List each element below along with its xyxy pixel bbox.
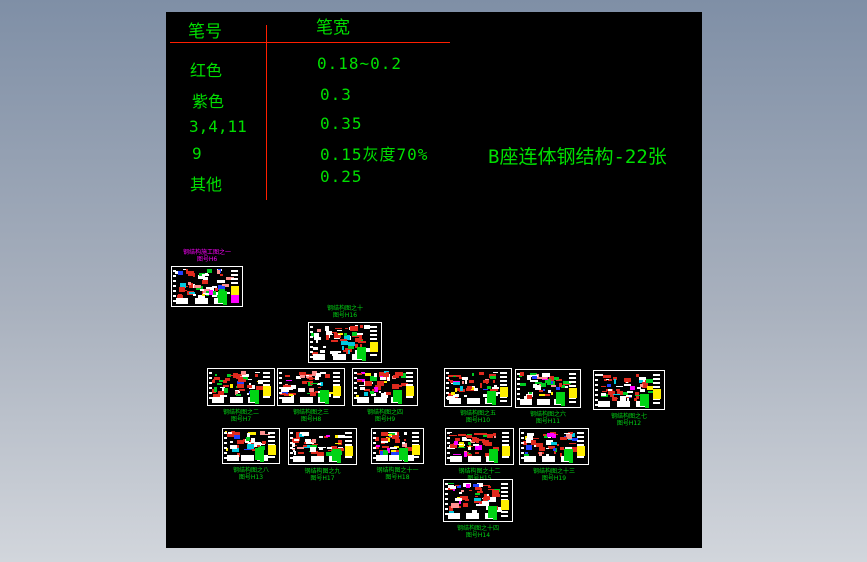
sheet-mark: [262, 441, 266, 444]
sheet-mark: [297, 447, 304, 449]
sheet-mark: [279, 377, 282, 379]
sheet-mark: [217, 270, 220, 274]
sheet-mark: [577, 456, 584, 458]
sheet-mark: [178, 294, 182, 297]
pen-table-header-number: 笔号: [188, 17, 222, 42]
sheet-mark: [458, 447, 466, 448]
sheet-mark: [614, 379, 616, 384]
pen-row-value: 0.15灰度70%: [320, 141, 428, 165]
sheet-mark: [373, 452, 376, 454]
sheet-mark: [485, 442, 492, 445]
drawing-sheet-thumbnail[interactable]: [308, 322, 382, 363]
sheet-mark: [354, 392, 357, 394]
sheet-mark: [447, 452, 450, 454]
sheet-mark: [500, 372, 507, 374]
sheet-mark: [390, 447, 397, 449]
sheet-mark: [320, 350, 325, 352]
sheet-mark: [231, 278, 238, 280]
sheet-mark: [346, 350, 348, 353]
sheet-mark: [209, 290, 213, 295]
sheet-mark: [189, 292, 195, 294]
sheet-mark: [460, 386, 463, 390]
cad-drawing-canvas[interactable]: 笔号 笔宽 红色 0.18~0.2 紫色 0.3 3,4,11 0.35 9 0…: [166, 12, 702, 548]
sheet-mark: [215, 374, 217, 376]
sheet-mark: [445, 493, 448, 495]
sheet-mark: [624, 378, 631, 381]
sheet-mark: [356, 338, 360, 340]
sheet-mark: [313, 347, 318, 350]
sheet-mark: [525, 452, 529, 455]
sheet-mark: [263, 380, 270, 382]
sheet-mark: [543, 434, 546, 436]
sheet-mark: [490, 376, 496, 378]
sheet-mark: [176, 298, 188, 304]
sheet-mark: [406, 396, 413, 398]
sheet-mark: [653, 374, 660, 376]
sheet-mark: [458, 434, 466, 436]
sheet-mark: [260, 459, 264, 462]
sheet-mark: [299, 372, 306, 376]
sheet-mark: [449, 398, 461, 404]
sheet-mark: [500, 380, 507, 382]
sheet-mark: [333, 372, 340, 374]
sheet-mark: [209, 392, 212, 394]
sheet-mark: [533, 438, 539, 439]
sheet-mark: [653, 389, 661, 399]
sheet-mark: [480, 383, 482, 388]
sheet-mark: [313, 354, 325, 360]
sheet-mark: [467, 386, 473, 389]
drawing-sheet-thumbnail[interactable]: [515, 369, 581, 408]
sheet-mark: [237, 440, 244, 444]
sheet-mark: [260, 431, 265, 435]
sheet-mark: [502, 446, 510, 456]
sheet-mark: [595, 384, 598, 386]
sheet-mark: [476, 504, 481, 506]
sheet-mark: [613, 394, 619, 395]
sheet-mark: [326, 435, 330, 437]
sheet-mark: [560, 437, 567, 440]
sheet-mark: [335, 435, 339, 438]
sheet-mark: [354, 387, 357, 389]
sheet-mark: [241, 371, 246, 375]
sheet-mark: [209, 382, 212, 384]
sheet-mark: [233, 373, 239, 378]
sheet-mark: [310, 392, 316, 397]
sheet-mark: [472, 373, 475, 376]
sheet-mark: [370, 338, 377, 340]
sheet-mark: [194, 285, 201, 288]
sheet-mark: [241, 455, 254, 461]
sheet-mark: [557, 444, 559, 446]
sheet-mark: [502, 436, 509, 438]
sheet-mark: [459, 492, 461, 493]
sheet-mark: [539, 447, 546, 451]
sheet-mark: [300, 432, 302, 434]
sheet-mark: [263, 376, 270, 378]
sheet-mark: [521, 447, 524, 449]
sheet-mark: [445, 488, 448, 490]
sheet-mark: [255, 401, 259, 404]
sheet-mark: [376, 455, 388, 461]
sheet-mark: [288, 387, 294, 390]
sheet-mark: [337, 460, 341, 463]
drawing-sheet-thumbnail[interactable]: [443, 479, 513, 522]
sheet-mark: [501, 511, 508, 513]
sheet-mark: [455, 498, 462, 501]
sheet-mark: [535, 382, 543, 383]
drawing-sheet-thumbnail[interactable]: [444, 368, 512, 407]
sheet-mark: [556, 387, 561, 390]
sheet-mark: [446, 372, 449, 374]
sheet-mark: [323, 346, 326, 348]
sheet-mark: [179, 287, 185, 292]
sheet-mark: [569, 381, 576, 383]
sheet-mark: [381, 432, 388, 435]
sheet-mark: [493, 517, 497, 520]
pen-table-header-width: 笔宽: [316, 13, 350, 38]
sheet-mark: [373, 442, 376, 444]
sheet-mark: [230, 375, 233, 376]
sheet-mark: [386, 392, 391, 395]
sheet-mark: [404, 459, 408, 462]
sheet-label: 钢结构图之四图号H9: [345, 409, 425, 423]
sheet-mark: [374, 397, 387, 403]
pen-row-label: 9: [192, 144, 202, 163]
sheet-mark: [290, 452, 293, 454]
sheet-mark: [178, 271, 182, 275]
sheet-mark: [200, 289, 204, 291]
sheet-mark: [230, 445, 236, 449]
sheet-mark: [532, 376, 537, 379]
sheet-mark: [345, 432, 352, 434]
sheet-mark: [224, 452, 227, 454]
sheet-mark: [569, 388, 577, 398]
sheet-mark: [545, 394, 549, 396]
sheet-mark: [364, 392, 368, 396]
drawing-sheet-thumbnail[interactable]: [519, 428, 589, 465]
sheet-label: 钢结构图之九图号H17: [283, 468, 363, 482]
sheet-mark: [294, 439, 296, 441]
sheet-mark: [217, 280, 225, 283]
sheet-mark: [393, 375, 399, 378]
sheet-mark: [494, 460, 498, 463]
sheet-mark: [537, 399, 550, 405]
sheet-mark: [268, 432, 275, 434]
drawing-sheet-thumbnail[interactable]: [207, 368, 275, 406]
sheet-mark: [653, 382, 660, 384]
sheet-mark: [217, 383, 222, 385]
sheet-mark: [569, 377, 576, 379]
sheet-mark: [325, 326, 329, 330]
sheet-mark: [310, 336, 313, 338]
sheet-mark: [392, 384, 399, 389]
drawing-sheet-thumbnail[interactable]: [171, 266, 243, 307]
sheet-mark: [454, 441, 458, 445]
sheet-mark: [447, 442, 450, 444]
sheet-mark: [333, 354, 346, 360]
sheet-mark: [473, 484, 478, 487]
sheet-mark: [451, 503, 459, 508]
sheet-mark: [354, 372, 357, 374]
sheet-mark: [653, 378, 660, 380]
sheet-mark: [381, 441, 388, 443]
sheet-mark: [302, 432, 310, 435]
cad-viewer-window: { "colors":{ "canvas_bg":"#000000", "bg_…: [0, 0, 867, 562]
sheet-mark: [337, 330, 342, 331]
sheet-mark: [595, 379, 598, 381]
sheet-mark: [214, 387, 218, 392]
sheet-mark: [173, 290, 176, 292]
sheet-mark: [542, 373, 549, 377]
sheet-mark: [445, 508, 448, 510]
sheet-mark: [406, 386, 414, 396]
sheet-mark: [310, 326, 313, 328]
sheet-mark: [606, 379, 609, 381]
sheet-mark: [345, 446, 353, 456]
sheet-mark: [345, 436, 352, 438]
sheet-mark: [466, 484, 470, 488]
sheet-mark: [450, 486, 455, 489]
sheet-mark: [310, 346, 313, 348]
sheet-mark: [325, 401, 329, 404]
sheet-mark: [350, 326, 358, 330]
sheet-mark: [452, 375, 460, 376]
sheet-mark: [520, 372, 524, 376]
sheet-mark: [279, 392, 282, 394]
sheet-mark: [521, 437, 524, 439]
sheet-mark: [376, 445, 380, 447]
sheet-mark: [501, 495, 508, 497]
sheet-mark: [370, 334, 377, 336]
sheet-label: 钢结构图之十四图号H14: [438, 525, 518, 539]
pen-row-label: 红色: [190, 57, 222, 81]
sheet-mark: [324, 436, 328, 437]
sheet-mark: [466, 435, 472, 438]
sheet-mark: [517, 393, 520, 395]
sheet-mark: [223, 302, 227, 305]
sheet-mark: [173, 275, 176, 277]
sheet-mark: [268, 436, 275, 438]
sheet-mark: [473, 444, 479, 446]
sheet-mark: [446, 377, 449, 379]
pen-row-value: 0.3: [320, 85, 352, 104]
sheet-mark: [502, 440, 509, 442]
sheet-mark: [561, 403, 565, 406]
sheet-mark: [329, 334, 333, 335]
sheet-mark: [577, 446, 585, 456]
sheet-mark: [402, 442, 405, 444]
sheet-mark: [312, 439, 315, 443]
sheet-mark: [231, 282, 238, 284]
sheet-mark: [230, 397, 243, 403]
drawing-sheet-thumbnail[interactable]: [445, 428, 514, 465]
sheet-label: 钢结构图之三图号H8: [271, 409, 351, 423]
sheet-mark: [223, 385, 229, 387]
sheet-mark: [577, 432, 584, 434]
sheet-mark: [645, 405, 649, 408]
sheet-mark: [569, 401, 576, 403]
sheet-mark: [344, 333, 347, 336]
sheet-mark: [212, 397, 224, 403]
sheet-mark: [202, 274, 209, 276]
sheet-mark: [501, 487, 508, 489]
sheet-mark: [305, 439, 311, 442]
sheet-mark: [311, 456, 324, 462]
sheet-mark: [286, 380, 293, 382]
sheet-mark: [255, 374, 258, 378]
sheet-mark: [479, 372, 485, 374]
sheet-mark: [173, 270, 176, 272]
sheet-mark: [188, 282, 191, 285]
sheet-mark: [279, 382, 282, 384]
sheet-mark: [526, 445, 531, 450]
sheet-mark: [354, 382, 357, 384]
sheet-mark: [500, 387, 508, 397]
sheet-mark: [231, 274, 238, 276]
sheet-mark: [238, 379, 246, 382]
sheet-mark: [451, 392, 455, 395]
sheet-mark: [202, 294, 206, 297]
drawing-sheet-thumbnail[interactable]: [288, 428, 357, 465]
sheet-mark: [494, 436, 497, 438]
sheet-mark: [230, 384, 233, 388]
sheet-mark: [467, 398, 480, 404]
sheet-mark: [222, 284, 228, 286]
sheet-mark: [298, 452, 304, 454]
sheet-mark: [448, 513, 460, 519]
sheet-mark: [595, 374, 598, 376]
sheet-mark: [345, 456, 352, 458]
sheet-mark: [492, 402, 496, 405]
sheet-mark: [290, 447, 293, 449]
sheet-label: 钢结构图之十三图号H19: [514, 468, 594, 482]
sheet-mark: [552, 443, 555, 445]
sheet-mark: [465, 380, 467, 385]
sheet-mark: [607, 384, 611, 386]
sheet-mark: [445, 483, 448, 485]
sheet-mark: [279, 372, 282, 374]
sheet-mark: [290, 437, 293, 439]
sheet-mark: [173, 280, 176, 282]
sheet-mark: [310, 447, 316, 452]
sheet-mark: [517, 373, 520, 375]
sheet-mark: [224, 437, 227, 439]
sheet-mark: [569, 385, 576, 387]
drawing-sheet-thumbnail[interactable]: [277, 368, 345, 406]
sheet-mark: [447, 447, 450, 449]
sheet-mark: [447, 437, 450, 439]
sheet-mark: [352, 332, 358, 336]
sheet-mark: [493, 372, 498, 374]
sheet-mark: [268, 440, 275, 442]
sheet-mark: [333, 396, 340, 398]
sheet-mark: [564, 433, 571, 434]
sheet-mark: [603, 375, 611, 378]
sheet-label: 钢结构图之五图号H10: [438, 410, 518, 424]
sheet-mark: [653, 386, 660, 388]
sheet-mark: [325, 374, 330, 378]
sheet-mark: [331, 340, 337, 342]
sheet-mark: [412, 445, 420, 455]
sheet-mark: [569, 373, 576, 375]
sheet-mark: [465, 439, 471, 441]
sheet-mark: [500, 376, 507, 378]
sheet-mark: [209, 387, 212, 389]
sheet-mark: [653, 402, 660, 404]
sheet-mark: [380, 377, 386, 380]
sheet-mark: [293, 456, 305, 462]
sheet-mark: [476, 438, 478, 443]
sheet-mark: [333, 376, 340, 378]
sheet-mark: [263, 386, 271, 396]
sheet-mark: [333, 380, 340, 382]
sheet-mark: [360, 387, 366, 390]
sheet-mark: [247, 385, 252, 387]
sheet-label: 钢结构图之十图号H16: [305, 305, 385, 319]
drawing-sheet-thumbnail[interactable]: [593, 370, 665, 410]
sheet-mark: [315, 376, 319, 380]
sheet-mark: [448, 483, 454, 484]
sheet-mark: [195, 298, 208, 304]
sheet-mark: [303, 445, 307, 447]
sheet-mark: [279, 387, 282, 389]
sheet-mark: [450, 456, 462, 462]
sheet-mark: [536, 443, 543, 447]
drawing-sheet-thumbnail[interactable]: [352, 368, 418, 406]
sheet-mark: [475, 487, 481, 490]
sheet-mark: [340, 339, 347, 341]
sheet-mark: [188, 271, 194, 276]
sheet-mark: [220, 274, 223, 276]
sheet-label: 钢结构图之二图号H7: [201, 409, 281, 423]
sheet-mark: [492, 387, 499, 389]
sheet-mark: [483, 485, 490, 486]
sheet-mark: [517, 388, 520, 390]
sheet-mark: [479, 433, 487, 435]
sheet-mark: [542, 456, 555, 462]
sheet-mark: [224, 432, 227, 434]
sheet-mark: [306, 375, 309, 376]
sheet-mark: [231, 270, 238, 272]
sheet-mark: [551, 381, 554, 384]
sheet-mark: [517, 378, 520, 380]
sheet-mark: [529, 392, 532, 394]
sheet-mark: [462, 381, 465, 384]
sheet-label: 钢结构图之六图号H11: [508, 411, 588, 425]
drawing-sheet-thumbnail[interactable]: [222, 428, 280, 464]
sheet-mark: [616, 386, 623, 387]
sheet-mark: [310, 351, 313, 353]
sheet-mark: [446, 382, 449, 384]
sheet-mark: [552, 434, 556, 438]
sheet-mark: [520, 383, 527, 386]
sheet-mark: [268, 456, 275, 458]
sheet-mark: [566, 434, 571, 439]
sheet-mark: [469, 380, 474, 383]
sheet-mark: [601, 393, 607, 396]
sheet-mark: [312, 444, 318, 445]
sheet-mark: [406, 372, 413, 374]
sheet-mark: [602, 391, 607, 392]
sheet-mark: [309, 377, 313, 378]
pen-row-value: 0.35: [320, 114, 363, 133]
sheet-mark: [300, 397, 313, 403]
sheet-mark: [446, 392, 449, 394]
drawing-sheet-thumbnail[interactable]: [371, 428, 424, 464]
sheet-mark: [381, 381, 383, 384]
sheet-mark: [501, 483, 508, 485]
